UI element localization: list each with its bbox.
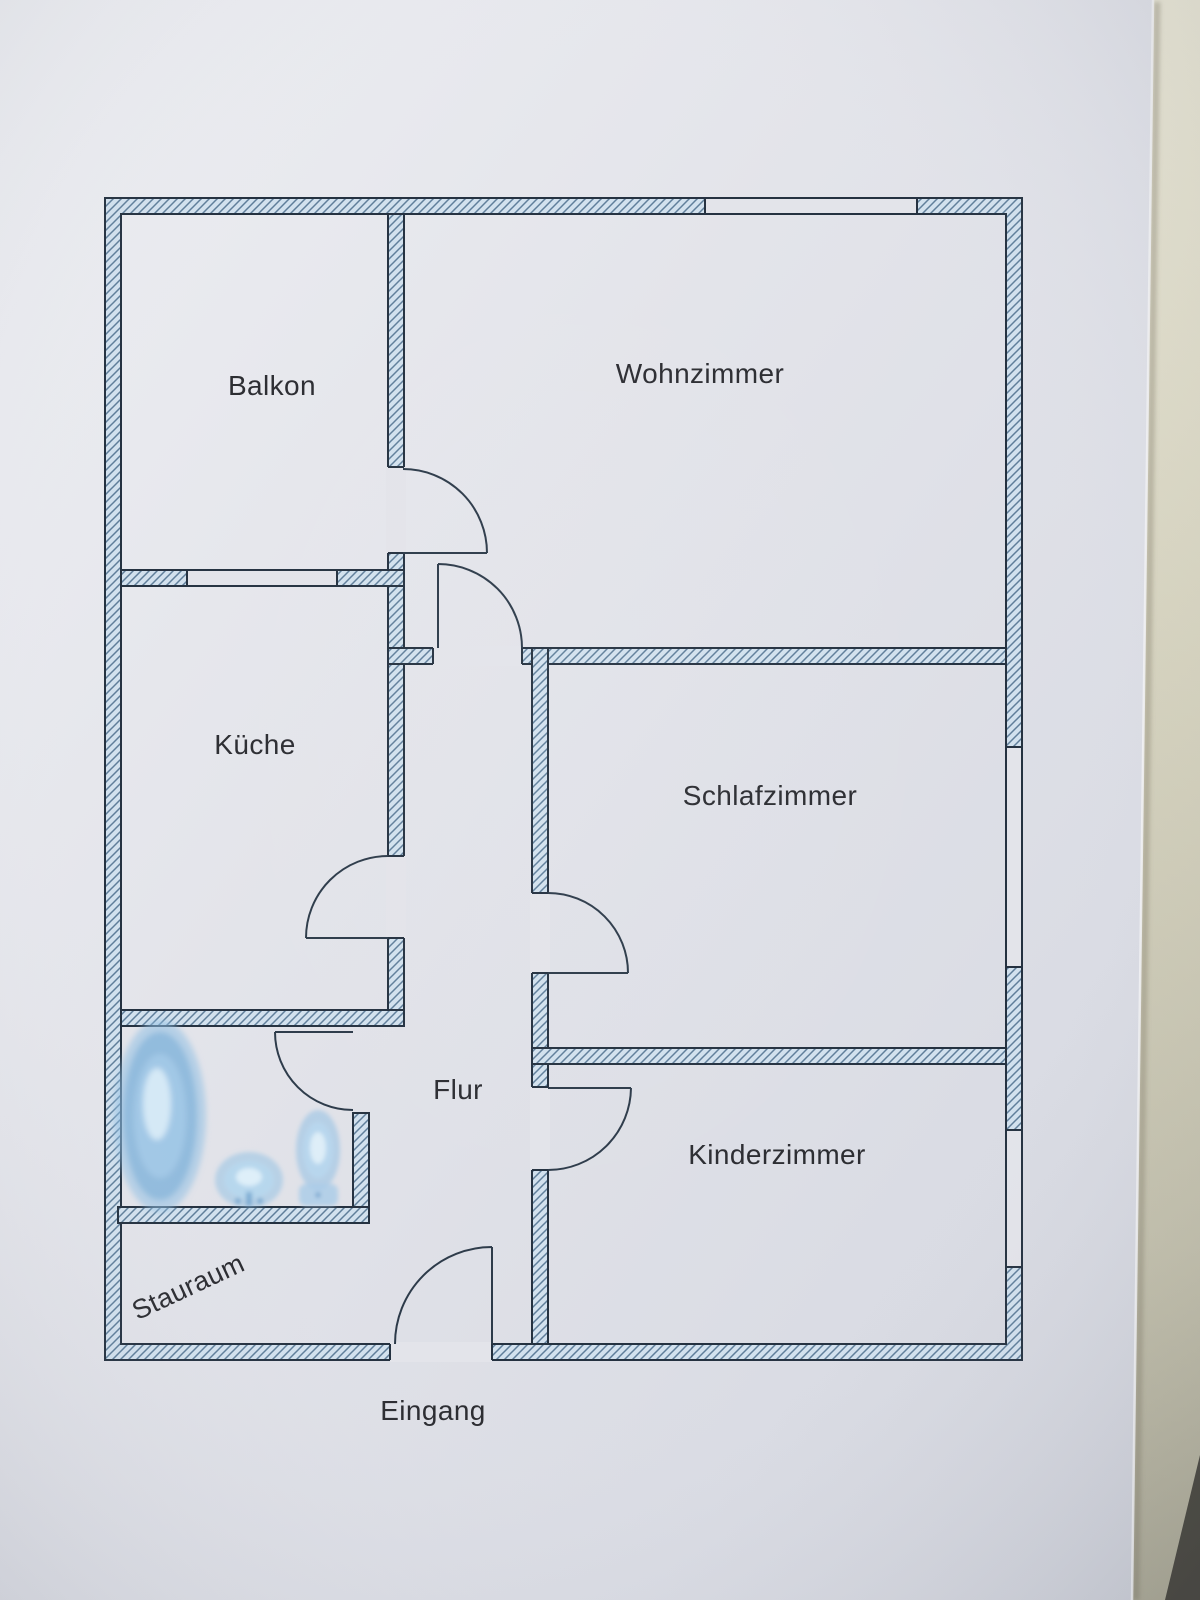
room-label-schlafzimmer: Schlafzimmer bbox=[683, 780, 857, 811]
window-kinderzimmer-right bbox=[1005, 1130, 1023, 1267]
bathtub-icon bbox=[114, 1020, 206, 1212]
wall-schlafzimmer-kinderzimmer bbox=[532, 1048, 1006, 1064]
wall-flur-right bbox=[532, 648, 548, 1344]
room-label-kinderzimmer: Kinderzimmer bbox=[688, 1139, 866, 1170]
room-label-kueche: Küche bbox=[214, 729, 295, 760]
floor-plan-svg: Balkon Wohnzimmer Küche Schlafzimmer Flu… bbox=[0, 0, 1200, 1600]
window-balkon-kueche bbox=[187, 569, 337, 587]
floor-plan-photo: Balkon Wohnzimmer Küche Schlafzimmer Flu… bbox=[0, 0, 1200, 1600]
sink-icon bbox=[215, 1152, 283, 1208]
window-schlafzimmer-right bbox=[1005, 747, 1023, 967]
room-label-wohnzimmer: Wohnzimmer bbox=[616, 358, 784, 389]
entrance-label: Eingang bbox=[380, 1395, 486, 1426]
window-wohnzimmer-top bbox=[705, 197, 917, 215]
room-label-balkon: Balkon bbox=[228, 370, 316, 401]
toilet-icon bbox=[296, 1110, 340, 1206]
room-label-flur: Flur bbox=[433, 1074, 483, 1105]
